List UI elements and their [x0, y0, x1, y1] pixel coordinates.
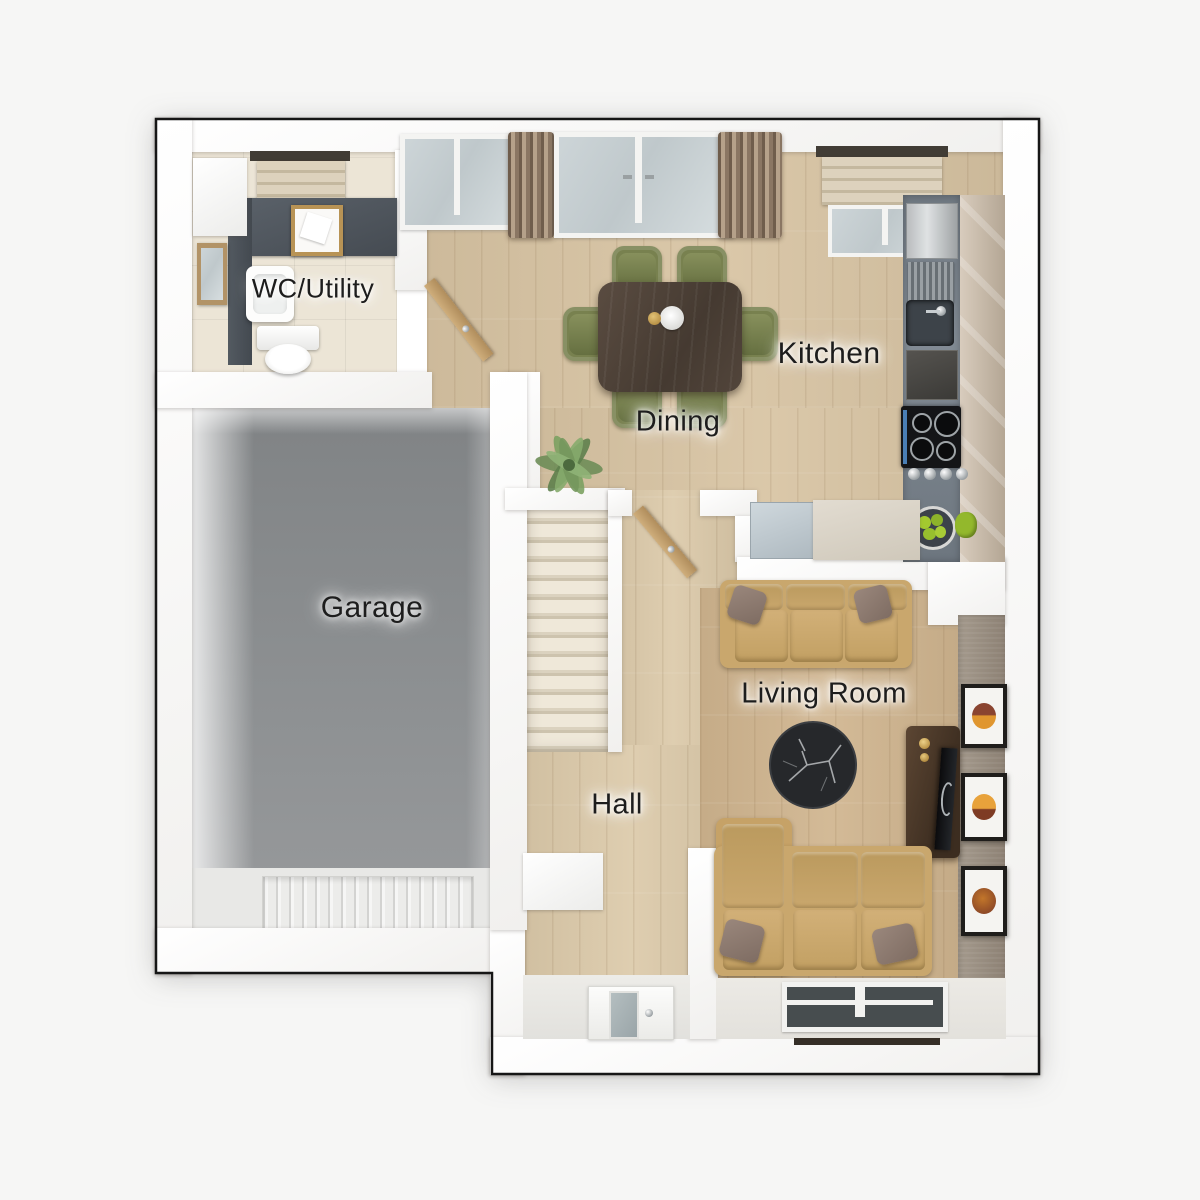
- wall-right-exterior: [1003, 118, 1040, 1075]
- potted-plant: [526, 420, 612, 506]
- front-door: [588, 986, 674, 1040]
- dish-rack: [908, 262, 954, 302]
- hall-door-handle: [666, 544, 676, 554]
- sofa-bottom: [714, 818, 932, 978]
- sink-faucet-spout: [926, 310, 940, 313]
- curtain-left: [508, 132, 554, 238]
- sofa-seat-cushion: [793, 910, 857, 970]
- wall-art-3: [961, 866, 1007, 936]
- french-doors-mullion: [635, 137, 642, 223]
- room-label-dining: Dining: [636, 406, 721, 439]
- utility-cabinet: [193, 158, 247, 236]
- laundry-basket: [291, 205, 343, 256]
- decor-gold-dish: [920, 753, 929, 762]
- hall-console-cabinet: [523, 853, 603, 910]
- wall-art-1: [961, 684, 1007, 748]
- folded-towel: [300, 212, 333, 245]
- wc-mirror: [197, 243, 227, 305]
- kitchen-oven: [906, 350, 958, 400]
- kitchen-tall-cabinets: [960, 195, 1005, 562]
- apple-3: [923, 528, 936, 540]
- fruit-cluster: [955, 512, 977, 538]
- floor-plan-canvas: WC/Utility Dining Kitchen Garage Hall Li…: [0, 0, 1200, 1200]
- room-label-hall: Hall: [591, 789, 643, 822]
- wc-door-handle: [461, 324, 471, 334]
- sofa-back-cushion: [792, 852, 858, 908]
- art-1-graphic: [972, 703, 996, 729]
- hob-knob-3: [940, 468, 952, 480]
- hob-burner-3: [910, 437, 934, 461]
- sofa-back-cushion: [861, 852, 925, 908]
- centerpiece-plate: [660, 306, 684, 330]
- sofa-back-cushion: [786, 584, 845, 610]
- kitchen-window-mullion: [882, 209, 888, 245]
- wall-garage-bottom: [155, 928, 493, 974]
- hob-burner-2: [934, 411, 960, 437]
- wc-mirror-glass: [201, 248, 223, 300]
- wall-left-exterior: [155, 118, 192, 974]
- french-doors: [554, 132, 734, 238]
- wc-window-blind: [257, 161, 345, 199]
- hob-control-strip: [903, 410, 907, 464]
- garage-floor: [192, 408, 492, 930]
- chair-seat: [737, 314, 772, 355]
- art-2-graphic: [972, 794, 996, 820]
- hob-burner-1: [912, 413, 932, 433]
- room-label-kitchen: Kitchen: [778, 337, 881, 371]
- sofa-seat-cushion: [790, 610, 843, 662]
- dining-window-mullion: [454, 139, 460, 215]
- room-label-garage: Garage: [321, 591, 423, 625]
- tv-screen-reflection: [940, 782, 955, 817]
- stairs-stringer: [608, 490, 622, 752]
- kitchen-sink: [906, 300, 954, 346]
- kitchen-appliance: [906, 203, 958, 259]
- radiator-shelf: [794, 1011, 940, 1045]
- front-door-glazing: [609, 991, 639, 1039]
- french-door-handle-left: [623, 175, 632, 179]
- wall-art-2: [961, 773, 1007, 841]
- centerpiece-gold-cup: [648, 312, 661, 325]
- wall-garage-east: [490, 372, 527, 930]
- wall-wc-garage: [155, 372, 432, 408]
- tv-screen: [934, 748, 957, 851]
- staircase: [527, 505, 608, 752]
- coffee-table: [769, 721, 857, 809]
- art-3-graphic: [972, 888, 996, 914]
- apple-2: [931, 514, 943, 526]
- living-window-mullion-h: [787, 1000, 933, 1005]
- hob-knob-2: [924, 468, 936, 480]
- garage-door: [262, 876, 474, 932]
- sofa-top: [720, 580, 912, 668]
- sofa-back-cushion: [722, 824, 784, 908]
- wc-window-pelmet: [250, 151, 350, 161]
- dining-table: [598, 282, 742, 392]
- hob-knob-4: [956, 468, 968, 480]
- wall-hall-door-right: [700, 490, 757, 516]
- french-door-handle-right: [645, 175, 654, 179]
- hob-knob-1: [908, 468, 920, 480]
- room-label-wc-utility: WC/Utility: [252, 274, 374, 305]
- peninsula-counter: [813, 500, 920, 560]
- apple-4: [935, 526, 946, 538]
- decor-gold-bowl: [919, 738, 930, 749]
- hob-burner-4: [936, 441, 956, 461]
- room-label-living-room: Living Room: [741, 678, 907, 711]
- dishwasher: [750, 502, 815, 559]
- toilet-bowl: [265, 344, 311, 374]
- front-door-handle: [645, 1009, 653, 1017]
- kitchen-window-pelmet: [816, 146, 948, 157]
- wall-bottom-exterior: [490, 1037, 1040, 1075]
- curtain-right: [718, 132, 782, 238]
- kitchen-hob: [901, 406, 961, 468]
